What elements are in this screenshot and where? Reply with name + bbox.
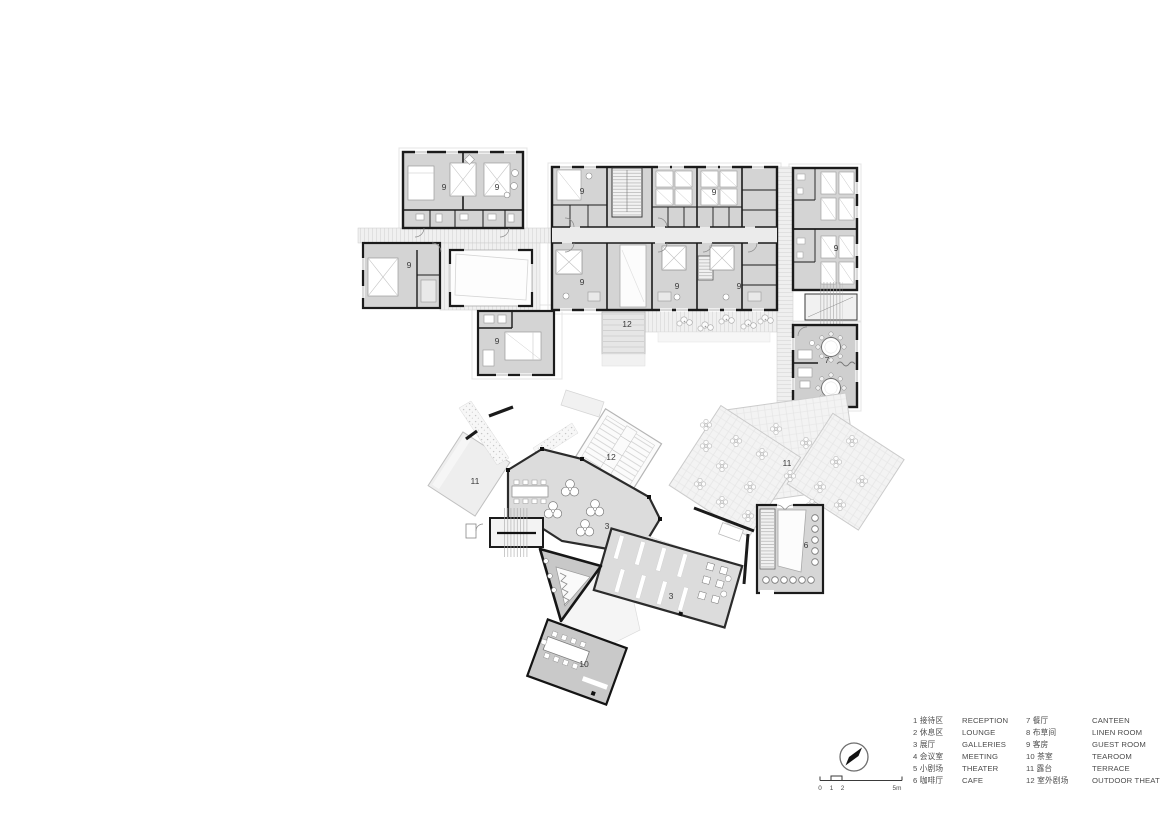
- legend-label-en: TEAROOM: [1092, 751, 1160, 763]
- room-number-label: 7: [825, 355, 830, 365]
- legend-label-zh: 8 布草间: [1026, 727, 1090, 739]
- long-table: [512, 486, 548, 497]
- room-number-label: 9: [495, 336, 500, 346]
- room-number-label: 9: [407, 260, 412, 270]
- room-number-label: 12: [606, 452, 616, 462]
- legend-label-en: RECEPTION: [962, 715, 1024, 727]
- legend-label-zh: 12 室外剧场: [1026, 775, 1090, 787]
- scale-bar: 0 1 2 5m: [818, 776, 902, 792]
- legend-label-zh: 11 露台: [1026, 763, 1090, 775]
- guest-room-block-e: [793, 168, 857, 332]
- west-corridor-deck: [358, 228, 554, 243]
- canteen-block: [793, 325, 857, 407]
- legend-label-zh: 6 咖啡厅: [913, 775, 960, 787]
- guest-room-block-d: [552, 167, 777, 310]
- room-number-label: 9: [675, 281, 680, 291]
- legend-label-en: GALLERIES: [962, 739, 1024, 751]
- room-number-label: 6: [804, 540, 809, 550]
- legend-label-zh: 3 展厅: [913, 739, 960, 751]
- legend-label-zh: 4 会议室: [913, 751, 960, 763]
- room-number-label: 10: [579, 659, 589, 669]
- legend-label-en: LINEN ROOM: [1092, 727, 1160, 739]
- legend-label-zh: 2 休息区: [913, 727, 960, 739]
- room-number-label: 9: [834, 243, 839, 253]
- legend-label-zh: 7 餐厅: [1026, 715, 1090, 727]
- legend: 1 接待区RECEPTION7 餐厅CANTEEN2 休息区LOUNGE8 布草…: [913, 715, 1160, 786]
- east-corridor-deck: [777, 167, 793, 407]
- dining-round-table: [816, 332, 846, 362]
- legend-label-zh: 1 接待区: [913, 715, 960, 727]
- legend-label-en: GUEST ROOM: [1092, 739, 1160, 751]
- legend-label-zh: 9 客房: [1026, 739, 1090, 751]
- room-number-label: 9: [580, 186, 585, 196]
- legend-label-en: CANTEEN: [1092, 715, 1160, 727]
- guest-room-block-b: [363, 243, 440, 308]
- scale-label-5m: 5m: [893, 785, 902, 792]
- room-number-label: 11: [471, 476, 480, 486]
- scale-label-0: 0: [818, 785, 822, 792]
- room-number-label: 9: [737, 281, 742, 291]
- room-number-label: 9: [712, 187, 717, 197]
- floor-plan-page: 999999999912712111133610 0 1 2 5m 1 接待区R…: [0, 0, 1160, 821]
- room-number-label: 3: [669, 591, 674, 601]
- scale-label-1: 1: [830, 785, 834, 792]
- floor-plan-drawing: 999999999912712111133610 0 1 2 5m: [0, 0, 1160, 821]
- cafe-stair: [760, 509, 775, 569]
- room-number-label: 9: [442, 182, 447, 192]
- terrace-west: [428, 401, 513, 516]
- cafe: [757, 502, 823, 596]
- guest-room-block-c: [478, 311, 554, 375]
- north-arrow-icon: [840, 743, 868, 771]
- legend-label-en: THEATER: [962, 763, 1024, 775]
- central-corridor: [552, 227, 777, 243]
- room-number-label: 11: [783, 458, 792, 468]
- legend-label-en: LOUNGE: [962, 727, 1024, 739]
- legend-label-en: OUTDOOR THEATER: [1092, 775, 1160, 787]
- room-number-label: 9: [495, 182, 500, 192]
- stairwell-block-d: [612, 168, 642, 217]
- room-number-label: 3: [605, 521, 610, 531]
- scale-label-2: 2: [841, 785, 845, 792]
- legend-label-en: TERRACE: [1092, 763, 1160, 775]
- legend-label-en: MEETING: [962, 751, 1024, 763]
- room-number-label: 12: [622, 319, 632, 329]
- guest-room-block-a: [403, 152, 523, 228]
- legend-label-en: CAFE: [962, 775, 1024, 787]
- room-number-label: 9: [580, 277, 585, 287]
- courtyard: [450, 250, 532, 306]
- legend-label-zh: 10 茶室: [1026, 751, 1090, 763]
- legend-label-zh: 5 小剧场: [913, 763, 960, 775]
